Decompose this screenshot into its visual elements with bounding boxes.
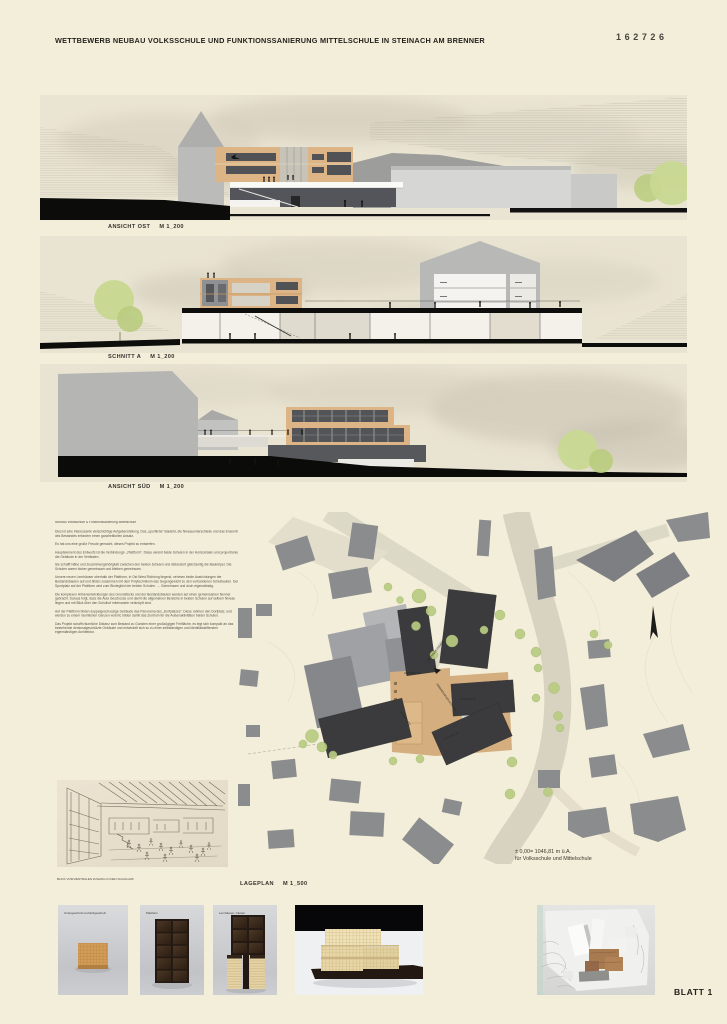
description-paragraph: Dies ist eine interessante vielschichtig… (55, 530, 241, 539)
section-a-drawing (40, 236, 687, 353)
project-description: Neubau Volksschule & Funktionssanierung … (55, 521, 241, 736)
siteplan-scale-text: M 1_500 (283, 881, 308, 887)
drawing-scale-text: M 1_200 (159, 224, 184, 230)
description-paragraph: Hauptelement des Entwurfs ist die Verbin… (55, 551, 241, 560)
description-paragraph: Die komplexen Höhenentwicklungen des Gru… (55, 593, 241, 606)
dark-wafer (243, 955, 249, 989)
new-school-section (200, 278, 302, 308)
description-paragraph: Unsere neuen Lernhäuser oberhalb der Pla… (55, 576, 241, 589)
model-photo-lernhaeuser: Lernhäuser, Cluster (213, 905, 277, 995)
drawing-label-sued: ANSICHT SÜDM 1_200 (108, 484, 184, 490)
dark-background (295, 905, 423, 931)
model-photo-untergeschoss: Untergeschoß und Erdgeschoß (58, 905, 128, 995)
model-photo-plattform: Plattform (140, 905, 204, 995)
competition-board: WETTBEWERB NEUBAU VOLKSSCHULE UND FUNKTI… (0, 0, 727, 1024)
plan-label-cluster-ms: CLUSTER MS (404, 672, 421, 675)
elevation-note: ± 0,00= 1046,81 m ü.A. für Volksschule u… (515, 849, 592, 864)
elevation-note-line1: ± 0,00= 1046,81 m ü.A. (515, 849, 592, 856)
siteplan-label-text: LAGEPLAN (240, 881, 274, 887)
description-paragraph: Sie schafft Nähe und Zusammengehörigkeit… (55, 564, 241, 573)
drawing-label-text: ANSICHT OST (108, 224, 150, 230)
model-photo-4-image (295, 905, 423, 995)
sheet-number: BLATT 1 (674, 987, 713, 997)
model-photo-2-image (140, 905, 204, 995)
sketch-caption: BLICK VOM ZENTRALEN ZUGANG IN DEN SCHULH… (57, 869, 211, 887)
plattform-base (230, 182, 403, 207)
entry-number: 162726 (616, 32, 668, 42)
site-plan: CLUSTER MS ZENTRALER ZUGANG VERBINDUNGSP… (238, 512, 710, 864)
description-paragraph: Es hat uns eine große Freude gemacht, di… (55, 543, 241, 547)
sketch-image (57, 780, 228, 867)
drawing-label-text: ANSICHT SÜD (108, 484, 151, 490)
description-paragraph: Das Projekt schafft räumliche Distanz zu… (55, 622, 241, 635)
page-title: WETTBEWERB NEUBAU VOLKSSCHULE UND FUNKTI… (55, 36, 485, 45)
photo-caption: Untergeschoß und Erdgeschoß (64, 912, 106, 915)
description-paragraph: Auf der Plattform bilden doppelgeschossi… (55, 610, 241, 619)
elevation-sued-drawing (40, 364, 687, 482)
drawing-label-ost: ANSICHT OSTM 1_200 (108, 224, 184, 230)
model-photo-1-image (58, 905, 128, 995)
drawing-scale-text: M 1_200 (150, 354, 175, 360)
plan-label-cluster-vs: CLUSTER VS (460, 698, 476, 701)
siteplan-label: LAGEPLANM 1_500 (240, 881, 308, 887)
model-photo-3-image (213, 905, 277, 995)
photo-caption: Lernhäuser, Cluster (219, 912, 245, 915)
site-model-photo (537, 905, 655, 995)
elevation-ost-drawing (40, 95, 687, 220)
elevation-note-line2: für Volksschule und Mittelschule (515, 856, 592, 863)
drawing-label-schnitt: SCHNITT AM 1_200 (108, 354, 175, 360)
new-school-building (215, 147, 353, 182)
photo-caption: Plattform (146, 912, 158, 915)
model-photo-composite (295, 905, 423, 995)
sketch-caption-text: BLICK VOM ZENTRALEN ZUGANG IN DEN SCHULH… (57, 878, 134, 881)
description-title: Neubau Volksschule & Funktionssanierung … (55, 521, 241, 525)
drawing-scale-text: M 1_200 (160, 484, 185, 490)
drawing-label-text: SCHNITT A (108, 354, 141, 360)
new-school-building (286, 407, 410, 445)
